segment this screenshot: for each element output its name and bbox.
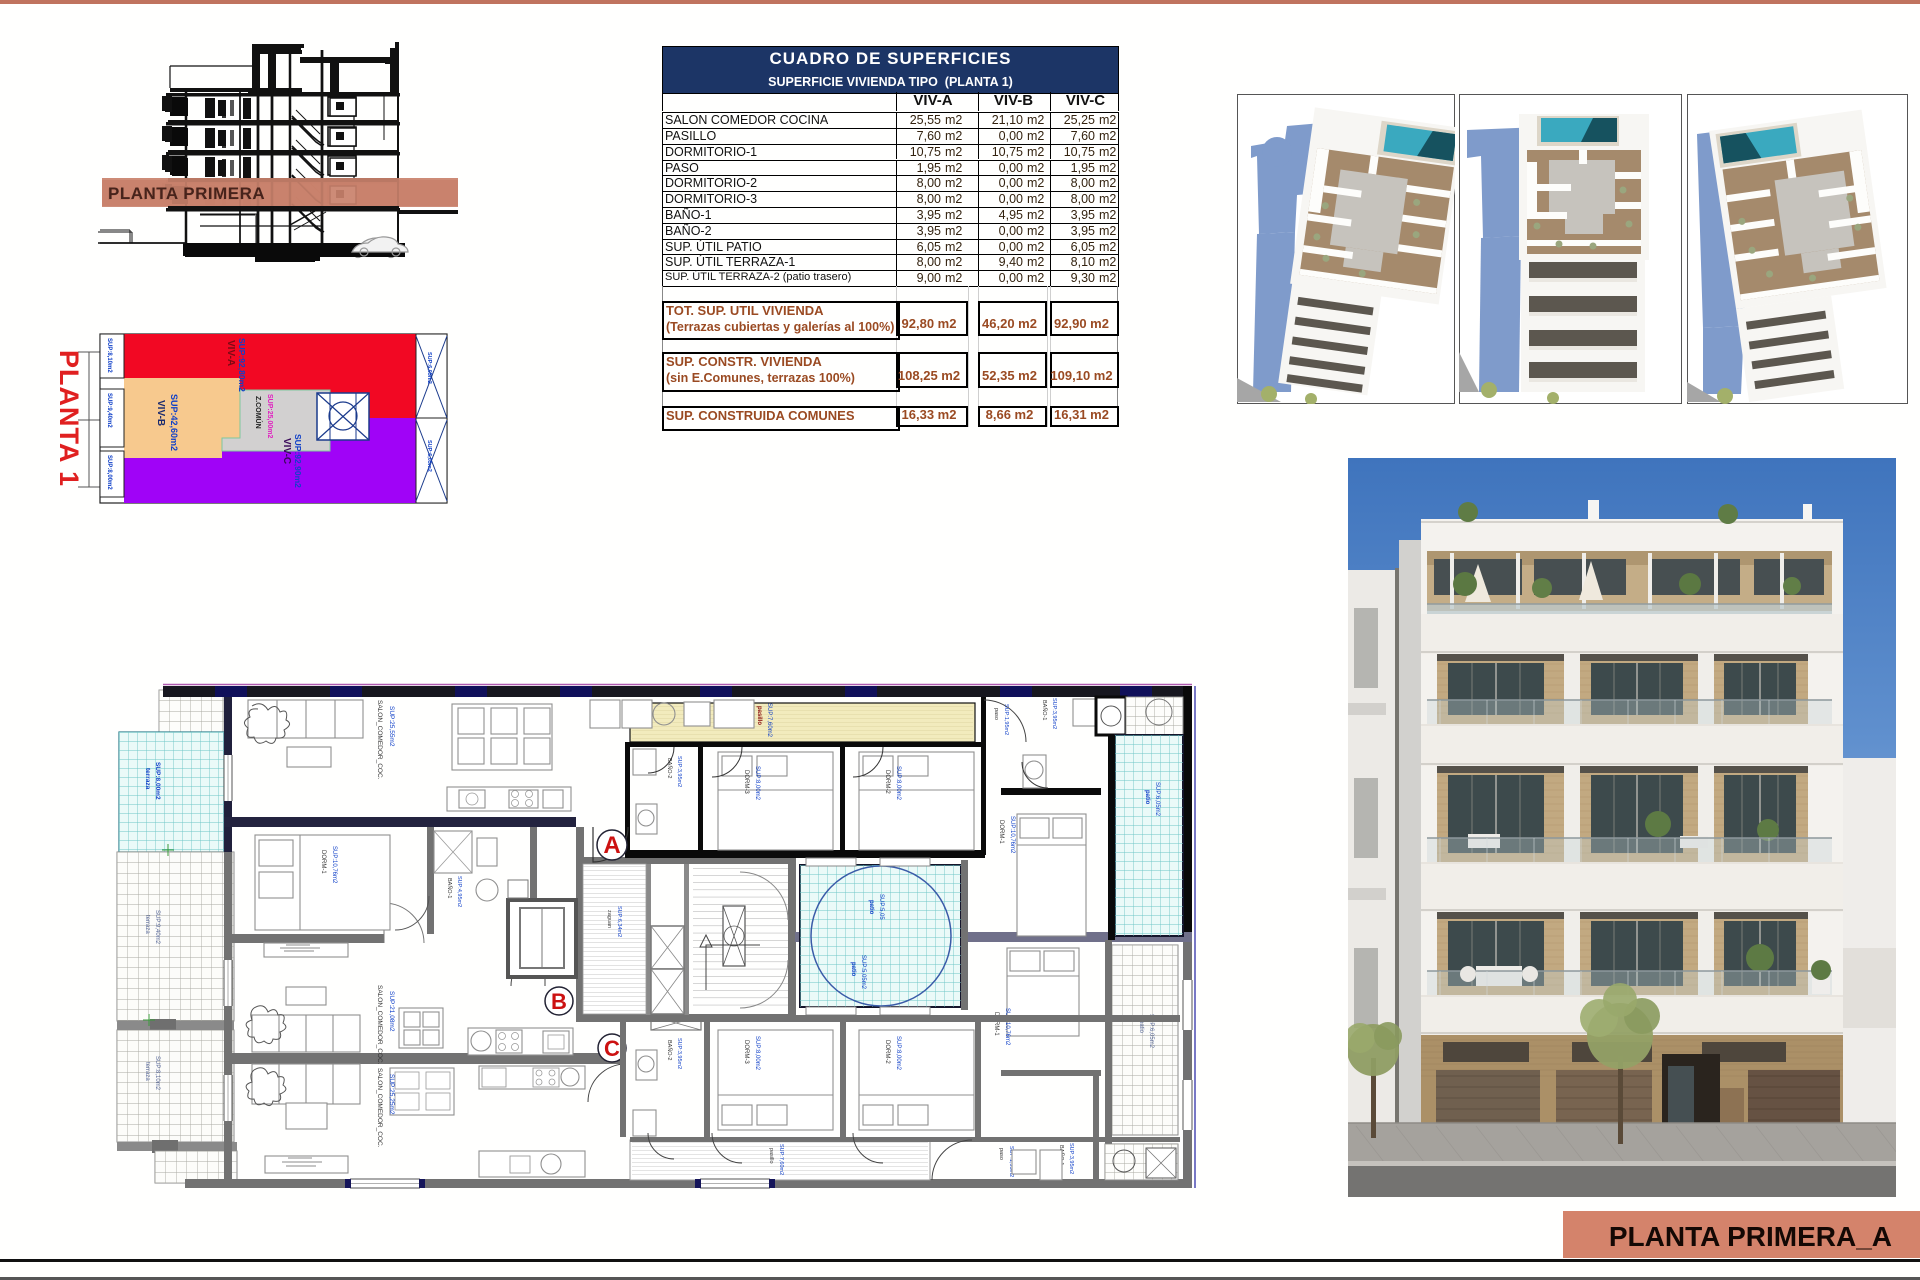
svg-text:PLANTA PRIMERA: PLANTA PRIMERA — [108, 184, 265, 203]
svg-text:SUP:7,60m2: SUP:7,60m2 — [766, 703, 772, 738]
svg-text:SUP:10,76m2: SUP:10,76m2 — [331, 846, 337, 884]
svg-text:SUP:7,60m2: SUP:7,60m2 — [778, 1144, 784, 1175]
svg-text:SUP:42,60m2: SUP:42,60m2 — [169, 394, 179, 451]
svg-text:SUP:5,05: SUP:5,05 — [878, 894, 884, 920]
svg-text:DORM-3: DORM-3 — [743, 770, 749, 794]
svg-text:patio: patio — [868, 900, 874, 915]
svg-text:DORM-3: DORM-3 — [743, 1040, 749, 1064]
svg-text:SUP:10,76m2: SUP:10,76m2 — [1004, 1008, 1010, 1046]
svg-text:SUP:21,08m2: SUP:21,08m2 — [388, 991, 395, 1032]
svg-text:SUP:1,95m2: SUP:1,95m2 — [1003, 704, 1009, 735]
svg-text:Z.COMÚN: Z.COMÚN — [254, 396, 263, 429]
svg-text:VIV-C: VIV-C — [281, 438, 292, 464]
svg-text:terraza: terraza — [144, 1062, 150, 1081]
svg-text:SUP:92,80m2: SUP:92,80m2 — [237, 338, 247, 392]
svg-text:SUP:3,95m2: SUP:3,95m2 — [1051, 698, 1057, 729]
svg-text:SALON_COMEDOR_COC.: SALON_COMEDOR_COC. — [376, 985, 383, 1065]
svg-text:SUP:25,55m2: SUP:25,55m2 — [388, 706, 395, 747]
svg-text:SUP:25,25m2: SUP:25,25m2 — [388, 1074, 395, 1115]
svg-text:A: A — [603, 832, 620, 859]
svg-text:SUP:9,40m2: SUP:9,40m2 — [154, 910, 160, 945]
svg-text:SUP:9,40m2: SUP:9,40m2 — [106, 393, 112, 428]
svg-text:SUP:8,00m2: SUP:8,00m2 — [154, 762, 161, 800]
svg-text:BAÑO-2: BAÑO-2 — [666, 1040, 673, 1060]
svg-text:SUP:10,76m2: SUP:10,76m2 — [1009, 816, 1015, 854]
svg-text:patio: patio — [1138, 1020, 1144, 1034]
svg-text:C: C — [604, 1036, 620, 1061]
svg-text:paso: paso — [993, 708, 999, 720]
svg-text:SUP:6,34m2: SUP:6,34m2 — [616, 906, 622, 937]
svg-text:DORM-1: DORM-1 — [320, 850, 326, 874]
svg-text:SUP:3,95m2: SUP:3,95m2 — [676, 1038, 682, 1069]
svg-text:pasillo: pasillo — [768, 1148, 774, 1164]
svg-text:patio: patio — [1144, 790, 1150, 805]
svg-text:BAÑO-1: BAÑO-1 — [1041, 700, 1048, 720]
svg-text:SUP:92,90m2: SUP:92,90m2 — [293, 434, 303, 488]
svg-text:SUP:8,00m2: SUP:8,00m2 — [106, 455, 112, 490]
svg-text:SUP:3,95m2: SUP:3,95m2 — [676, 756, 682, 787]
svg-text:B: B — [551, 989, 567, 1014]
svg-text:pasillo: pasillo — [756, 706, 762, 725]
svg-text:SUP:8,00m2: SUP:8,00m2 — [754, 1036, 760, 1071]
svg-text:SUP:6,05m2: SUP:6,05m2 — [426, 352, 432, 384]
svg-text:SUP:8,00m2: SUP:8,00m2 — [895, 1036, 901, 1071]
svg-text:VIV-B: VIV-B — [155, 400, 166, 426]
svg-text:DORM-2: DORM-2 — [884, 1040, 890, 1064]
svg-text:SUP:6,05m2: SUP:6,05m2 — [426, 440, 432, 472]
svg-text:VIV-A: VIV-A — [225, 340, 236, 366]
svg-text:SUP:4,95m2: SUP:4,95m2 — [456, 876, 462, 907]
svg-text:SUP:8,00m2: SUP:8,00m2 — [754, 766, 760, 801]
svg-text:SALON_COMEDOR_COC.: SALON_COMEDOR_COC. — [376, 700, 383, 780]
svg-text:SUP:8,00m2: SUP:8,00m2 — [895, 766, 901, 801]
svg-text:SUP:8,10m2: SUP:8,10m2 — [106, 338, 112, 373]
svg-text:SUP:25,00m2: SUP:25,00m2 — [266, 394, 273, 438]
svg-text:SUP:3,95m2: SUP:3,95m2 — [1068, 1143, 1074, 1174]
svg-text:paso: paso — [998, 1148, 1004, 1160]
svg-text:PLANTA 1: PLANTA 1 — [54, 350, 84, 487]
svg-text:SUP:8,10m2: SUP:8,10m2 — [154, 1056, 160, 1091]
svg-text:SALON_COMEDOR_COC.: SALON_COMEDOR_COC. — [376, 1068, 383, 1148]
svg-text:DORM-1: DORM-1 — [998, 820, 1004, 844]
svg-text:DORM-2: DORM-2 — [884, 770, 890, 794]
svg-text:terraza: terraza — [144, 915, 150, 934]
svg-text:SUP:5,05m2: SUP:5,05m2 — [860, 955, 866, 990]
svg-text:terraza: terraza — [144, 768, 151, 790]
svg-text:zaguan: zaguan — [606, 910, 612, 928]
svg-text:BAÑO-1: BAÑO-1 — [446, 878, 453, 898]
svg-text:SUP:6,05m2: SUP:6,05m2 — [1154, 782, 1160, 817]
svg-text:patio: patio — [850, 962, 856, 977]
